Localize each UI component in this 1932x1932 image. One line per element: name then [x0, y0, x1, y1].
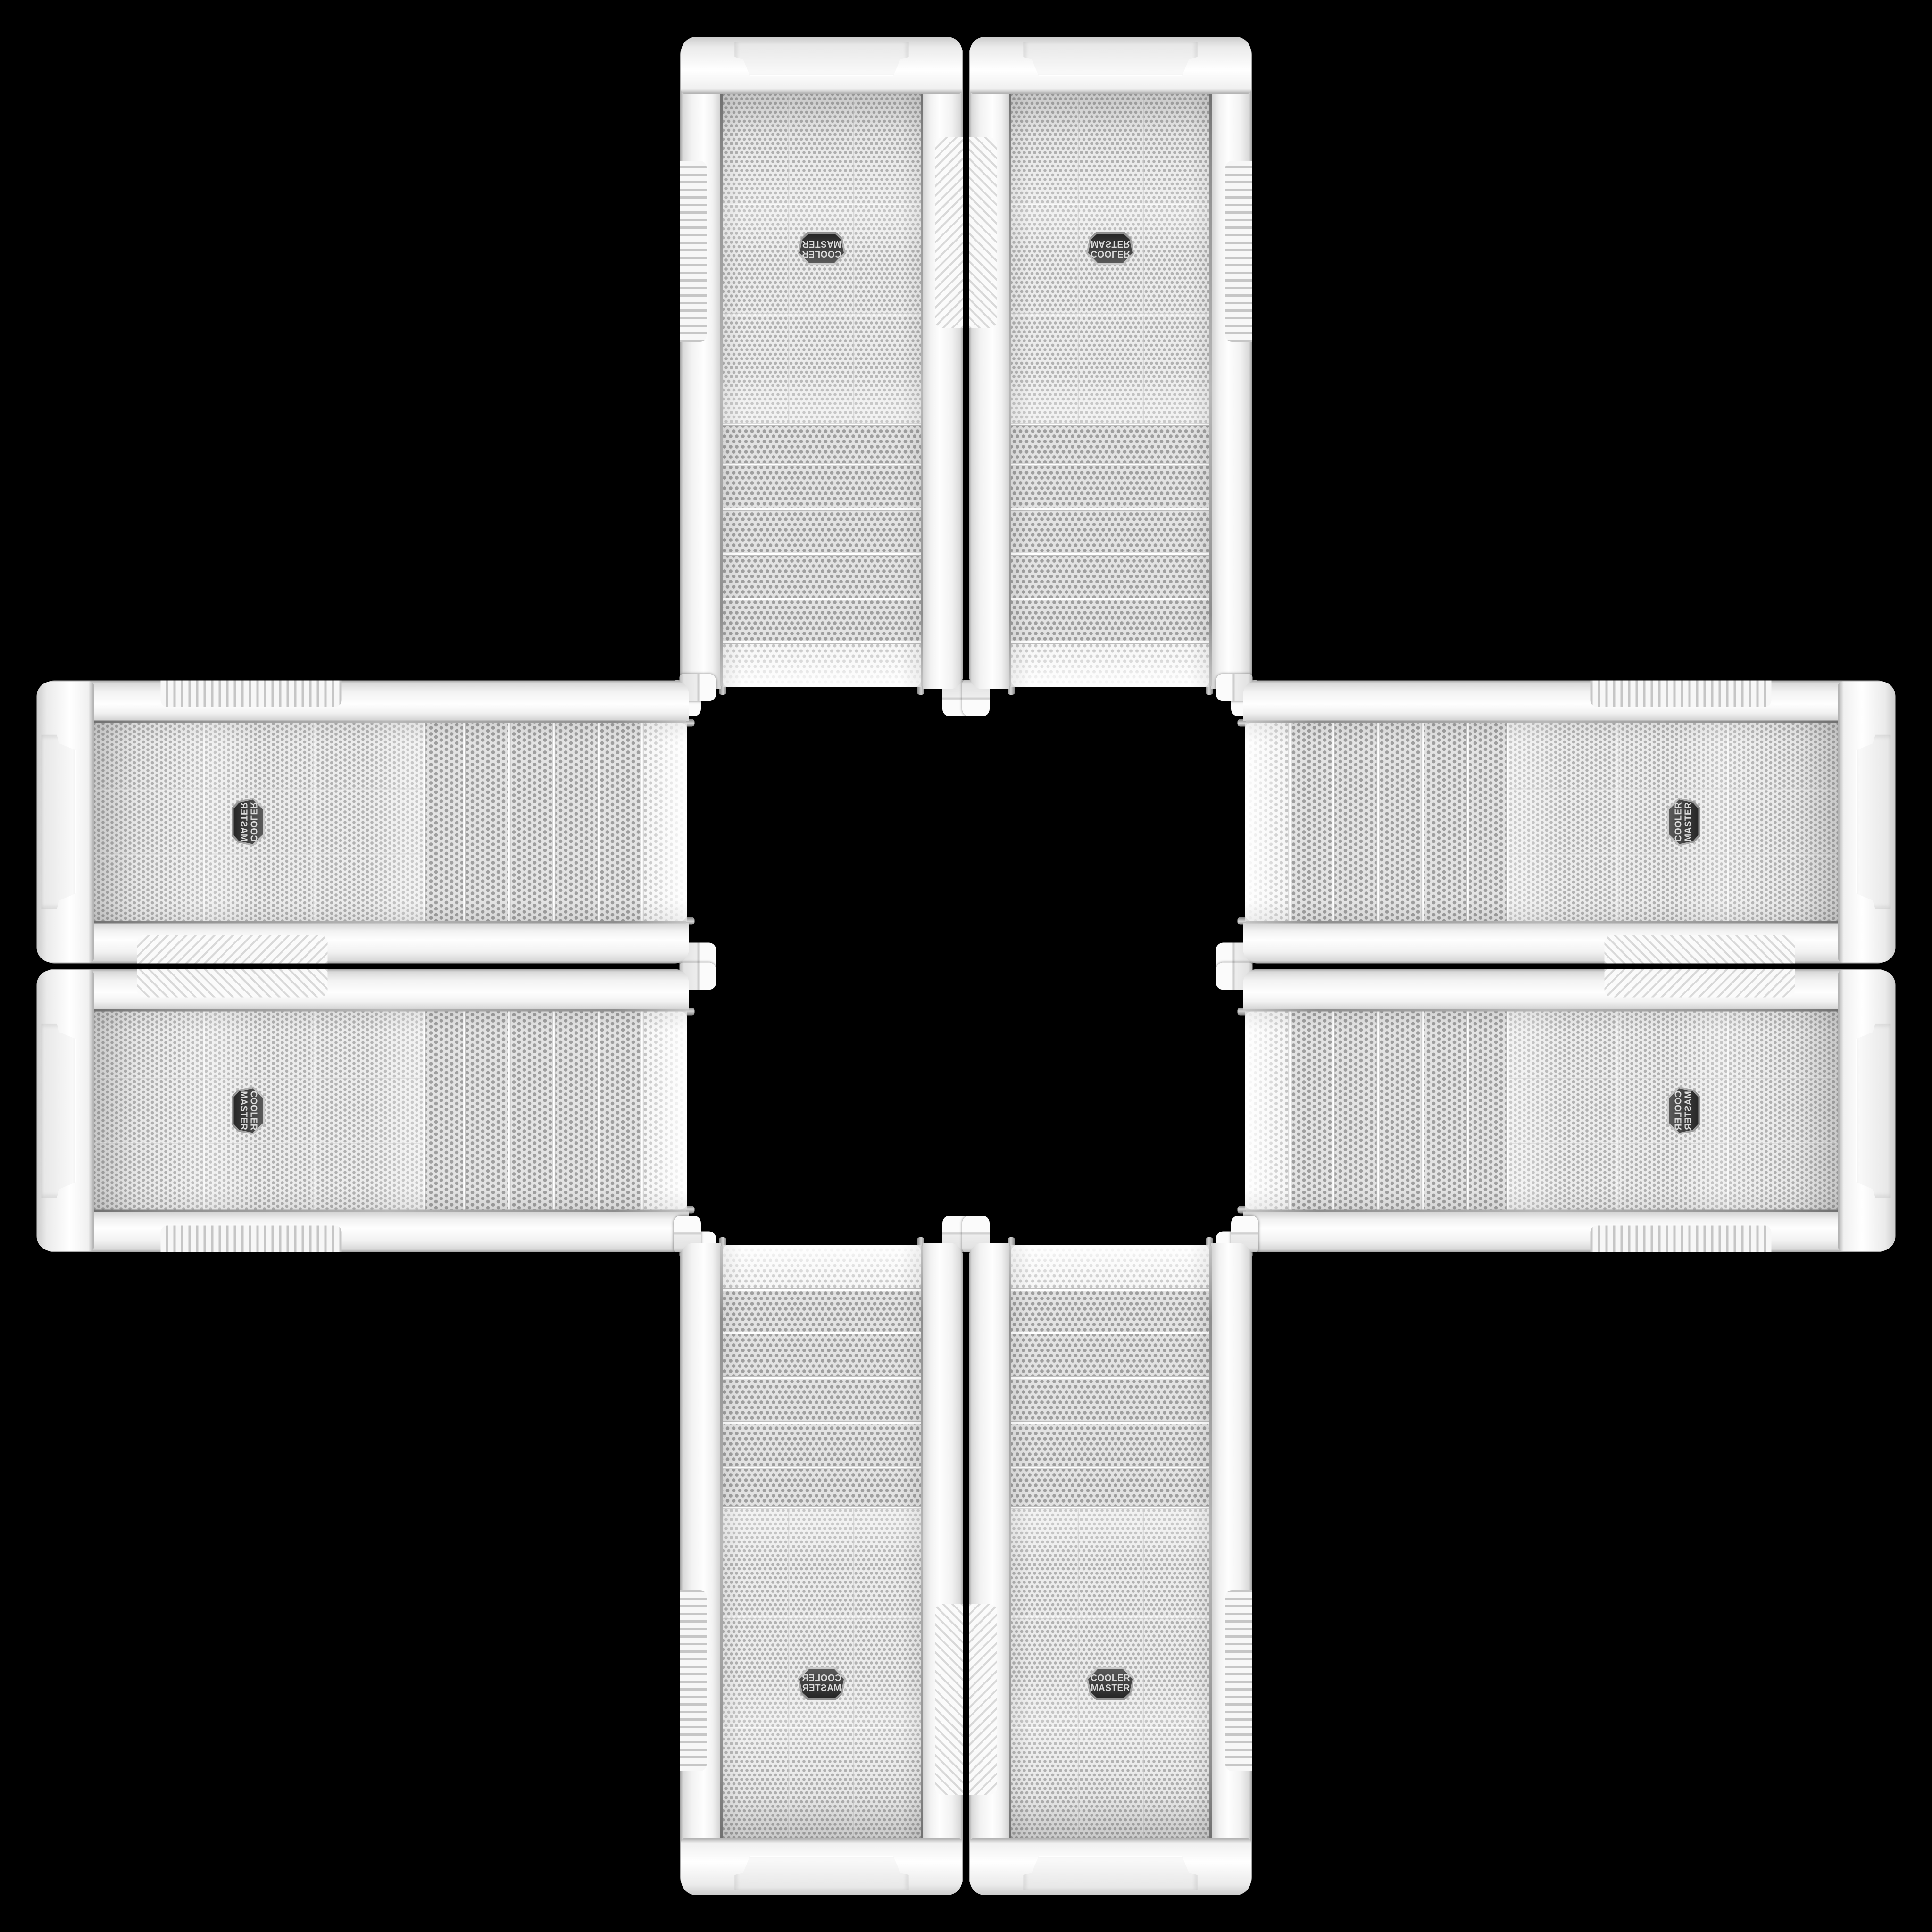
- side-rail-right: [680, 39, 721, 689]
- case-front-bezel: COOLER MASTER: [680, 1242, 963, 1895]
- grip-ribs: [161, 1226, 342, 1252]
- bay-seam: [1011, 1288, 1209, 1291]
- grid-seam-vertical: [96, 1077, 424, 1079]
- grid-seam-vertical: [1508, 1077, 1836, 1079]
- bay-seam: [723, 1466, 921, 1469]
- case-front-bezel: COOLER MASTER: [680, 37, 963, 690]
- bay-seam: [463, 1012, 466, 1210]
- mesh-front: COOLER MASTER: [1011, 1245, 1209, 1838]
- badge-line2: MASTER: [1684, 1091, 1694, 1130]
- mesh-front: COOLER MASTER: [723, 1245, 921, 1838]
- cooler-master-badge: COOLER MASTER: [1086, 232, 1134, 265]
- case-panel-bottom-right: COOLER MASTER: [969, 1242, 1252, 1895]
- side-rail-right: [39, 681, 689, 721]
- badge-line1: COOLER: [802, 249, 841, 258]
- badge-face: COOLER MASTER: [1669, 1089, 1699, 1133]
- bay-seam: [1011, 1506, 1209, 1509]
- badge-line1: COOLER: [802, 1674, 841, 1683]
- chevron-vent-ribs: [137, 969, 328, 998]
- case-front-bezel: COOLER MASTER: [1242, 969, 1896, 1252]
- badge-text: COOLER MASTER: [1091, 239, 1130, 258]
- bay-seam: [423, 723, 426, 921]
- mesh-grid: COOLER MASTER: [94, 723, 426, 921]
- foot-plate: [734, 1856, 909, 1890]
- drive-bay-mesh: [1289, 1012, 1507, 1210]
- bottom-cap: [1838, 970, 1896, 1251]
- grid-seam-horizontal: [203, 1012, 205, 1210]
- foot-plate: [1856, 735, 1891, 909]
- chevron-vent-ribs: [1605, 935, 1795, 964]
- bay-seam: [1289, 1012, 1291, 1210]
- cooler-master-badge: COOLER MASTER: [798, 1667, 846, 1700]
- mesh-grid: COOLER MASTER: [1507, 723, 1838, 921]
- badge-face: COOLER MASTER: [1088, 234, 1133, 263]
- chevron-vent-ribs: [1605, 969, 1795, 998]
- bay-seam: [1011, 598, 1209, 600]
- foot-plate: [42, 1024, 76, 1198]
- mesh-top-curve: [644, 1012, 687, 1210]
- grid-seam-horizontal: [1011, 1616, 1209, 1619]
- drive-bay-mesh: [1289, 723, 1507, 921]
- badge-line2: MASTER: [239, 1091, 249, 1130]
- chrome-seam-right: [720, 92, 723, 686]
- chrome-seam-right: [720, 1246, 723, 1840]
- grid-seam-vertical: [788, 96, 790, 424]
- grid-seam-horizontal: [1617, 1012, 1619, 1210]
- badge-line2: MASTER: [239, 802, 249, 841]
- grip-ribs: [1225, 161, 1252, 342]
- grid-seam-vertical: [1508, 1142, 1836, 1144]
- case-front-bezel: COOLER MASTER: [37, 681, 690, 964]
- badge-line2: MASTER: [802, 1683, 841, 1693]
- grid-seam-horizontal: [313, 1012, 316, 1210]
- mesh-top-curve: [1245, 1012, 1289, 1210]
- badge-line1: COOLER: [1674, 1091, 1684, 1130]
- badge-text: COOLER MASTER: [1091, 1674, 1130, 1693]
- badge-line1: COOLER: [249, 1091, 258, 1130]
- drive-bay-mesh: [426, 1012, 644, 1210]
- grid-seam-vertical: [1508, 854, 1836, 856]
- side-rail-left: [923, 39, 963, 689]
- mesh-top-curve: [1011, 1245, 1209, 1288]
- case-panel-top-left: COOLER MASTER: [680, 37, 963, 690]
- mesh-front: COOLER MASTER: [94, 723, 687, 921]
- case-front-bezel: COOLER MASTER: [969, 1242, 1252, 1895]
- bay-seam: [1466, 1012, 1469, 1210]
- drive-bay-mesh: [723, 1288, 921, 1506]
- bay-seam: [553, 1012, 556, 1210]
- side-rail-right: [1243, 1212, 1894, 1252]
- case-front-bezel: COOLER MASTER: [37, 969, 690, 1252]
- chrome-seam-right: [1209, 92, 1212, 686]
- side-rail-right: [1243, 681, 1894, 721]
- bay-seam: [508, 723, 511, 921]
- bay-seam: [723, 508, 921, 511]
- cooler-master-badge: COOLER MASTER: [232, 1087, 265, 1135]
- badge-line2: MASTER: [802, 239, 841, 249]
- mesh-top-curve: [1011, 644, 1209, 687]
- grid-seam-vertical: [1077, 96, 1079, 424]
- case-panel-bottom-left: COOLER MASTER: [680, 1242, 963, 1895]
- chrome-seam-right: [1209, 1246, 1212, 1840]
- grip-ribs: [161, 681, 342, 707]
- bay-seam: [723, 463, 921, 466]
- mesh-grid: COOLER MASTER: [723, 94, 921, 426]
- cooler-master-badge: COOLER MASTER: [798, 232, 846, 265]
- drive-bay-mesh: [723, 426, 921, 644]
- grid-seam-vertical: [96, 788, 424, 790]
- grid-seam-horizontal: [723, 1616, 921, 1619]
- mesh-grid: COOLER MASTER: [1507, 1012, 1838, 1210]
- bottom-cap: [681, 37, 962, 94]
- badge-line1: COOLER: [1091, 1674, 1130, 1683]
- grid-seam-horizontal: [1727, 723, 1730, 921]
- mesh-front: COOLER MASTER: [1011, 94, 1209, 687]
- bay-seam: [1332, 723, 1335, 921]
- mesh-top-curve: [723, 644, 921, 687]
- side-rail-left: [39, 969, 689, 1010]
- bay-seam: [723, 553, 921, 556]
- chevron-vent-ribs: [137, 935, 328, 964]
- bay-seam: [1422, 723, 1424, 921]
- foot-plate: [42, 735, 76, 909]
- grid-seam-horizontal: [1011, 203, 1209, 205]
- grid-seam-horizontal: [723, 1727, 921, 1729]
- case-panel-left-bottom: COOLER MASTER: [37, 969, 690, 1252]
- mesh-grid: COOLER MASTER: [723, 1506, 921, 1838]
- bay-seam: [1011, 641, 1209, 644]
- badge-face: COOLER MASTER: [1669, 800, 1699, 844]
- foot-plate: [1023, 1856, 1198, 1890]
- side-rail-right: [1211, 39, 1252, 689]
- badge-line1: COOLER: [1091, 249, 1130, 258]
- bottom-cap: [970, 37, 1251, 94]
- chrome-seam-left: [92, 1009, 686, 1012]
- grid-seam-horizontal: [1011, 313, 1209, 316]
- grid-seam-vertical: [853, 1508, 855, 1836]
- grid-seam-horizontal: [723, 313, 921, 316]
- side-rail-left: [1243, 923, 1894, 964]
- chevron-vent-ribs: [935, 137, 963, 328]
- case-panel-right-bottom: COOLER MASTER: [1242, 969, 1896, 1252]
- case-panel-right-top: COOLER MASTER: [1242, 681, 1896, 964]
- grid-seam-horizontal: [1617, 723, 1619, 921]
- chrome-seam-left: [1009, 92, 1011, 686]
- bay-seam: [723, 598, 921, 600]
- grip-ribs: [1591, 681, 1772, 707]
- bay-seam: [723, 1288, 921, 1291]
- grid-seam-vertical: [1508, 788, 1836, 790]
- side-rail-right: [39, 1212, 689, 1252]
- chrome-seam-right: [92, 1210, 686, 1212]
- side-rail-left: [39, 923, 689, 964]
- bay-seam: [1011, 1332, 1209, 1334]
- grid-seam-vertical: [1142, 96, 1144, 424]
- grid-seam-horizontal: [313, 723, 316, 921]
- badge-face: COOLER MASTER: [1088, 1669, 1133, 1698]
- badge-line2: MASTER: [1091, 239, 1130, 249]
- chevron-vent-ribs: [969, 137, 997, 328]
- bay-seam: [1011, 553, 1209, 556]
- grid-seam-horizontal: [723, 203, 921, 205]
- grid-seam-vertical: [1077, 1508, 1079, 1836]
- bay-seam: [1422, 1012, 1424, 1210]
- badge-text: COOLER MASTER: [802, 1674, 841, 1693]
- case-front-bezel: COOLER MASTER: [969, 37, 1252, 690]
- mesh-front: COOLER MASTER: [723, 94, 921, 687]
- badge-text: COOLER MASTER: [239, 1091, 258, 1130]
- grid-seam-vertical: [96, 1142, 424, 1144]
- bay-seam: [641, 723, 644, 921]
- bay-seam: [723, 423, 921, 426]
- chrome-seam-right: [92, 721, 686, 723]
- foot-plate: [734, 42, 909, 76]
- drive-bay-mesh: [1011, 426, 1209, 644]
- case-panel-top-right: COOLER MASTER: [969, 37, 1252, 690]
- bay-seam: [723, 1332, 921, 1334]
- chrome-seam-left: [1246, 921, 1841, 924]
- badge-text: COOLER MASTER: [1674, 1091, 1694, 1130]
- stage: COOLER MASTER: [0, 0, 1932, 1932]
- chrome-seam-right: [1246, 1210, 1841, 1212]
- bay-seam: [1011, 1376, 1209, 1379]
- badge-text: COOLER MASTER: [239, 802, 258, 841]
- bay-seam: [1011, 423, 1209, 426]
- mesh-grid: COOLER MASTER: [1011, 1506, 1209, 1838]
- badge-face: COOLER MASTER: [799, 1669, 844, 1698]
- bay-seam: [1011, 508, 1209, 511]
- grid-seam-vertical: [788, 1508, 790, 1836]
- bay-seam: [1332, 1012, 1335, 1210]
- mesh-grid: COOLER MASTER: [1011, 94, 1209, 426]
- chrome-seam-left: [921, 1246, 923, 1840]
- case-front-bezel: COOLER MASTER: [1242, 681, 1896, 964]
- grid-seam-vertical: [1142, 1508, 1144, 1836]
- drive-bay-mesh: [1011, 1288, 1209, 1506]
- chrome-seam-left: [921, 92, 923, 686]
- mesh-top-curve: [1245, 723, 1289, 921]
- bay-seam: [1466, 723, 1469, 921]
- bay-seam: [1289, 723, 1291, 921]
- case-panel-left-top: COOLER MASTER: [37, 681, 690, 964]
- cooler-master-badge: COOLER MASTER: [1667, 798, 1700, 846]
- mesh-front: COOLER MASTER: [94, 1012, 687, 1210]
- bay-seam: [723, 1421, 921, 1424]
- side-rail-right: [1211, 1243, 1252, 1893]
- mesh-top-curve: [644, 723, 687, 921]
- bay-seam: [1011, 1421, 1209, 1424]
- badge-text: COOLER MASTER: [1674, 802, 1694, 841]
- bay-seam: [508, 1012, 511, 1210]
- grid-seam-vertical: [853, 96, 855, 424]
- badge-line2: MASTER: [1091, 1683, 1130, 1693]
- chrome-seam-left: [92, 921, 686, 924]
- badge-face: COOLER MASTER: [234, 1089, 263, 1133]
- bay-seam: [1507, 1012, 1509, 1210]
- badge-face: COOLER MASTER: [234, 800, 263, 844]
- side-rail-left: [923, 1243, 963, 1893]
- badge-line1: COOLER: [1674, 802, 1684, 841]
- side-rail-left: [1243, 969, 1894, 1010]
- grid-seam-vertical: [96, 854, 424, 856]
- bay-seam: [463, 723, 466, 921]
- chrome-seam-right: [1246, 721, 1841, 723]
- bottom-cap: [1838, 682, 1896, 963]
- chrome-seam-left: [1009, 1246, 1011, 1840]
- grip-ribs: [680, 161, 707, 342]
- grid-seam-horizontal: [1011, 1727, 1209, 1729]
- bay-seam: [723, 1376, 921, 1379]
- chrome-seam-left: [1246, 1009, 1841, 1012]
- bay-seam: [423, 1012, 426, 1210]
- grip-ribs: [680, 1590, 707, 1771]
- badge-line2: MASTER: [1684, 802, 1694, 841]
- grip-ribs: [1591, 1226, 1772, 1252]
- bay-seam: [1011, 463, 1209, 466]
- bottom-cap: [970, 1838, 1251, 1895]
- bay-seam: [723, 641, 921, 644]
- bay-seam: [598, 723, 600, 921]
- mesh-grid: COOLER MASTER: [94, 1012, 426, 1210]
- bottom-cap: [37, 970, 94, 1251]
- bottom-cap: [37, 682, 94, 963]
- badge-text: COOLER MASTER: [802, 239, 841, 258]
- chevron-vent-ribs: [935, 1604, 963, 1795]
- grip-ribs: [1225, 1590, 1252, 1771]
- side-rail-left: [969, 1243, 1009, 1893]
- foot-plate: [1023, 42, 1198, 76]
- grid-seam-horizontal: [203, 723, 205, 921]
- badge-line1: COOLER: [249, 802, 258, 841]
- cooler-master-badge: COOLER MASTER: [1667, 1087, 1700, 1135]
- mesh-front: COOLER MASTER: [1245, 1012, 1838, 1210]
- bay-seam: [641, 1012, 644, 1210]
- foot-plate: [1856, 1024, 1891, 1198]
- badge-face: COOLER MASTER: [799, 234, 844, 263]
- bay-seam: [1377, 723, 1380, 921]
- chevron-vent-ribs: [969, 1604, 997, 1795]
- bay-seam: [723, 1506, 921, 1509]
- mesh-front: COOLER MASTER: [1245, 723, 1838, 921]
- drive-bay-mesh: [426, 723, 644, 921]
- bay-seam: [553, 723, 556, 921]
- mesh-top-curve: [723, 1245, 921, 1288]
- cooler-master-badge: COOLER MASTER: [1086, 1667, 1134, 1700]
- side-rail-left: [969, 39, 1009, 689]
- bay-seam: [598, 1012, 600, 1210]
- cooler-master-badge: COOLER MASTER: [232, 798, 265, 846]
- bottom-cap: [681, 1838, 962, 1895]
- bay-seam: [1507, 723, 1509, 921]
- side-rail-right: [680, 1243, 721, 1893]
- grid-seam-horizontal: [1727, 1012, 1730, 1210]
- bay-seam: [1377, 1012, 1380, 1210]
- bay-seam: [1011, 1466, 1209, 1469]
